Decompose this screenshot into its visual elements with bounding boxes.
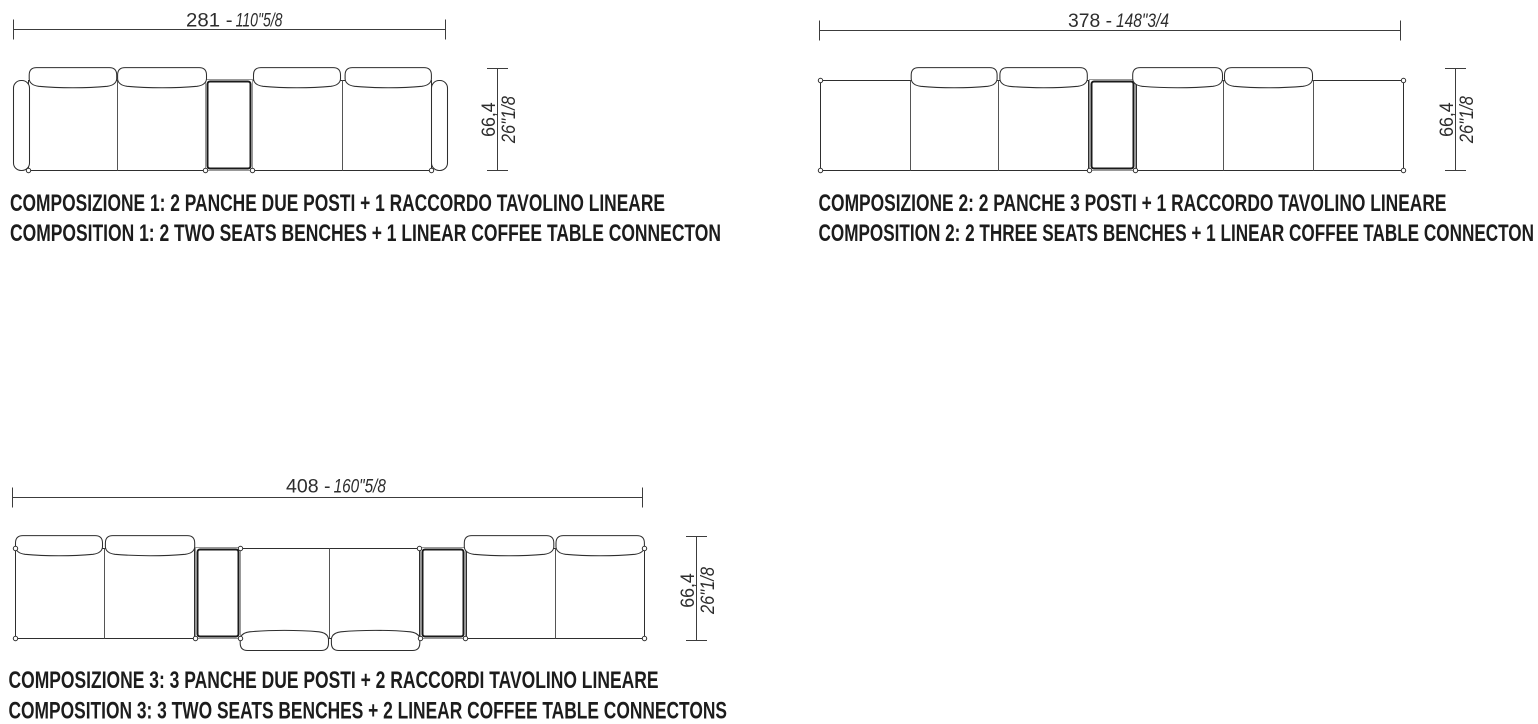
svg-text:26"1/8: 26"1/8	[698, 567, 719, 615]
svg-text:148"3/4: 148"3/4	[1116, 11, 1169, 32]
svg-text:COMPOSIZIONE 1: 2 PANCHE DUE P: COMPOSIZIONE 1: 2 PANCHE DUE POSTI + 1 R…	[10, 190, 665, 217]
svg-text:66,4: 66,4	[1437, 102, 1458, 137]
svg-text:26"1/8: 26"1/8	[1457, 96, 1478, 144]
svg-text:COMPOSIZIONE 3: 3 PANCHE DUE P: COMPOSIZIONE 3: 3 PANCHE DUE POSTI + 2 R…	[9, 667, 659, 694]
svg-text:160"5/8: 160"5/8	[334, 477, 387, 498]
svg-text:COMPOSITION 2: 2 THREE SEATS B: COMPOSITION 2: 2 THREE SEATS BENCHES + 1…	[819, 220, 1535, 247]
svg-text:281 -: 281 -	[186, 11, 233, 32]
svg-text:66,4: 66,4	[678, 573, 699, 608]
svg-text:408 -: 408 -	[286, 477, 331, 498]
svg-text:110"5/8: 110"5/8	[236, 11, 283, 32]
svg-text:COMPOSIZIONE 2: 2 PANCHE 3 POS: COMPOSIZIONE 2: 2 PANCHE 3 POSTI + 1 RAC…	[819, 190, 1447, 217]
svg-text:66,4: 66,4	[479, 102, 500, 137]
svg-text:COMPOSITION 1: 2 TWO SEATS BEN: COMPOSITION 1: 2 TWO SEATS BENCHES + 1 L…	[10, 220, 721, 247]
svg-text:COMPOSITION 3: 3 TWO SEATS BEN: COMPOSITION 3: 3 TWO SEATS BENCHES + 2 L…	[9, 698, 728, 724]
svg-text:26"1/8: 26"1/8	[499, 96, 520, 144]
svg-text:378 -: 378 -	[1068, 11, 1112, 32]
